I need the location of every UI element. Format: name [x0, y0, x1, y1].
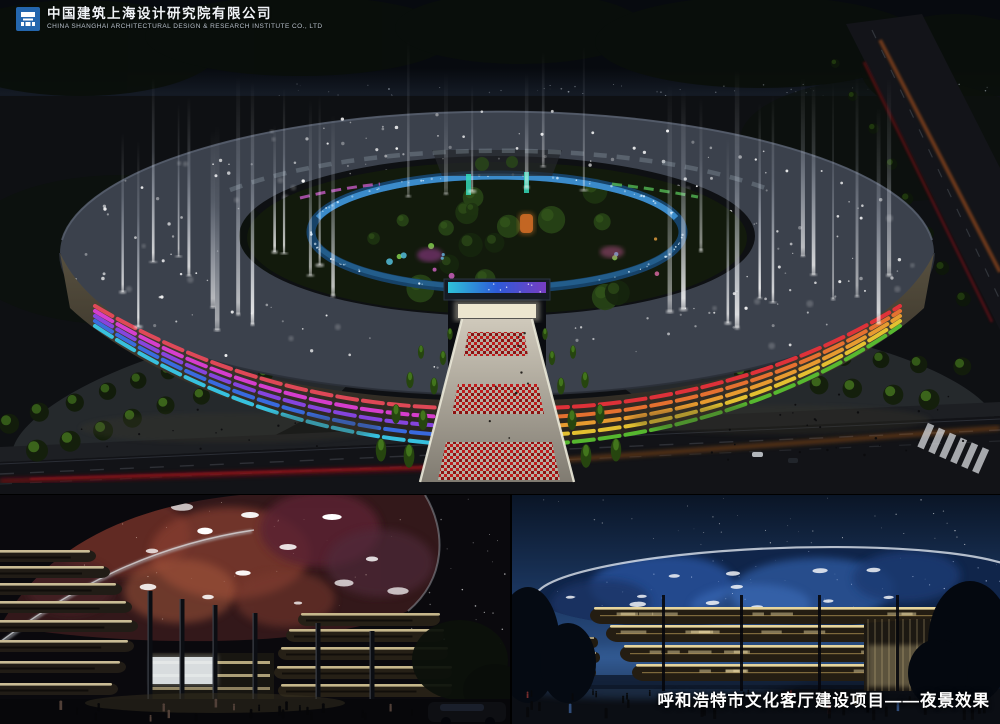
company-name-block: 中国建筑上海设计研究院有限公司 CHINA SHANGHAI ARCHITECT…: [47, 6, 323, 31]
company-logo-icon: [16, 7, 40, 31]
red-nebula-canopy-scene: [0, 495, 510, 724]
bridge-media-screen: [448, 282, 546, 293]
aerial-night-rendering: [0, 0, 1000, 494]
aerial-night-scene: [0, 0, 1000, 494]
company-name-cn: 中国建筑上海设计研究院有限公司: [47, 6, 323, 21]
canopy-underside-rendering: [0, 495, 510, 724]
car: [752, 452, 763, 457]
car: [788, 458, 798, 463]
presentation-board: 中国建筑上海设计研究院有限公司 CHINA SHANGHAI ARCHITECT…: [0, 0, 1000, 724]
red-paving-pattern: [438, 442, 560, 480]
red-paving-pattern: [452, 384, 544, 414]
company-logo: 中国建筑上海设计研究院有限公司 CHINA SHANGHAI ARCHITECT…: [16, 6, 323, 31]
parked-car: [428, 702, 506, 724]
company-name-en: CHINA SHANGHAI ARCHITECTURAL DESIGN & RE…: [47, 23, 323, 31]
logo-mark: [19, 10, 37, 28]
project-caption: 呼和浩特市文化客厅建设项目——夜景效果: [658, 687, 991, 711]
red-paving-pattern: [464, 332, 528, 356]
